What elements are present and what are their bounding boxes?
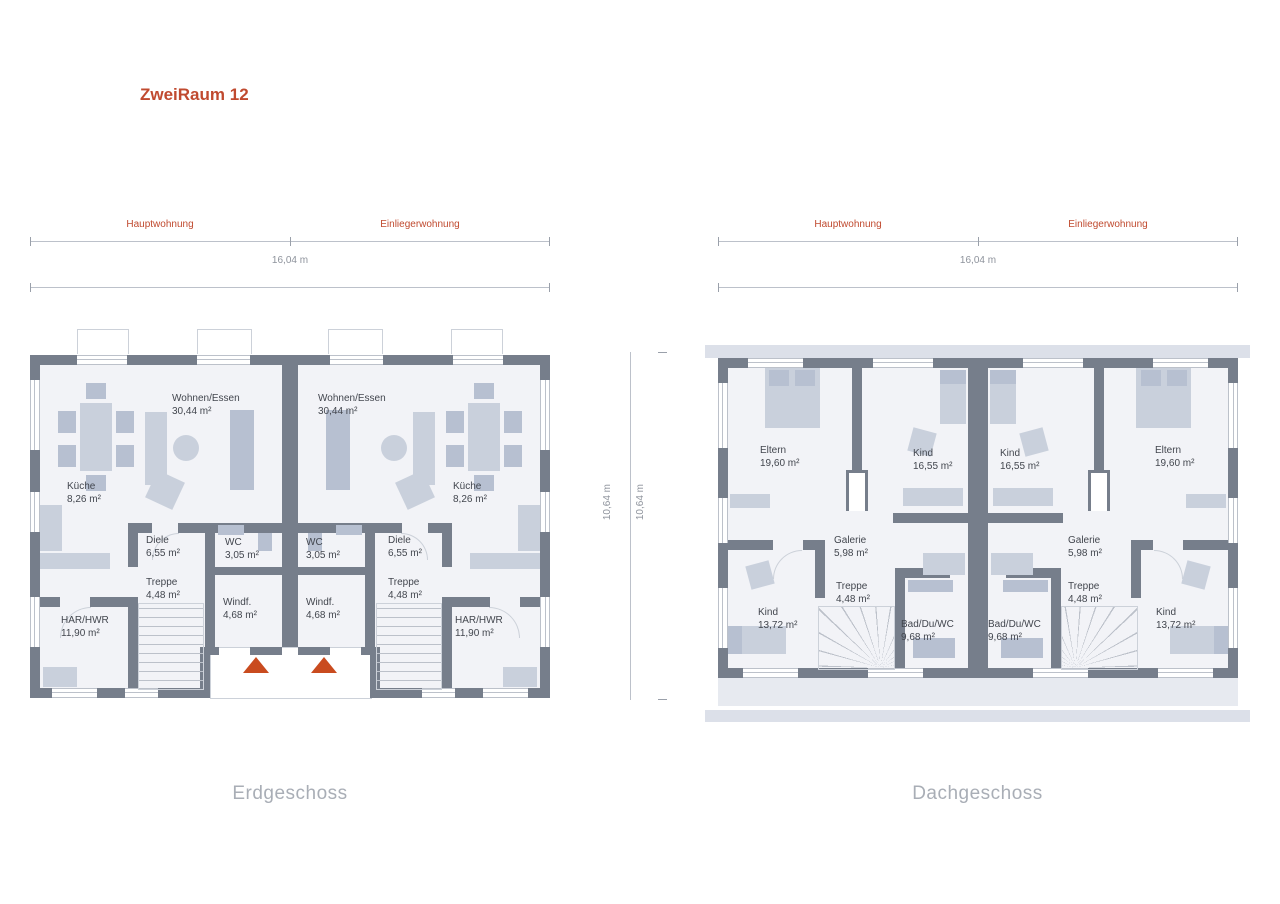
element: Treppe	[388, 577, 422, 590]
element: 3,05 m²	[306, 550, 340, 563]
eg-section-label-einliegerwohnung: Einliegerwohnung	[380, 219, 460, 230]
element: Windf.	[306, 597, 340, 610]
furniture	[990, 370, 1016, 384]
desk-chair	[1181, 560, 1210, 589]
room-label-treppe-right: Treppe4,48 m²	[1068, 581, 1102, 606]
element: 9,68 m²	[901, 632, 954, 645]
wall-segment	[852, 368, 862, 470]
wall-segment	[815, 540, 825, 598]
wall-segment	[250, 647, 282, 655]
room-label-bad-left: Bad/Du/WC9,68 m²	[901, 619, 954, 644]
window	[30, 492, 40, 532]
eg-caption: Erdgeschoss	[30, 783, 550, 805]
door-swing	[773, 550, 802, 579]
dg-staircase	[1061, 606, 1138, 670]
window	[718, 498, 728, 543]
coffee-table	[173, 435, 199, 461]
window	[30, 597, 40, 647]
element: 11,90 m²	[61, 628, 109, 641]
element: 13,72 m²	[1156, 620, 1195, 633]
element: Eltern	[1155, 445, 1194, 458]
sink	[218, 525, 244, 535]
room-label-windfang-right: Windf.4,68 m²	[306, 597, 340, 622]
sideboard	[326, 410, 350, 490]
element: 16,55 m²	[1000, 461, 1039, 474]
wardrobe	[1186, 494, 1226, 508]
window	[718, 383, 728, 448]
party-wall	[968, 358, 988, 678]
page-title: ZweiRaum 12	[140, 85, 249, 105]
dg-dim-line-sections	[718, 241, 1238, 242]
wall-segment	[442, 597, 452, 688]
element: 5,98 m²	[834, 548, 868, 561]
element: 6,55 m²	[388, 548, 422, 561]
closet	[923, 553, 965, 575]
room-label-eltern-left: Eltern19,60 m²	[760, 445, 799, 470]
element: WC	[225, 537, 259, 550]
window	[743, 668, 798, 678]
furniture	[474, 383, 494, 399]
awning-mark	[451, 329, 503, 354]
dimension-tick	[718, 283, 719, 292]
dg-total-width: 16,04 m	[960, 255, 996, 266]
dachgeschoss-plan: Eltern19,60 m² Kind16,55 m² Galerie5,98 …	[705, 345, 1250, 722]
room-label-treppe-left: Treppe4,48 m²	[836, 581, 870, 606]
depth-label-dg: 10,64 m	[635, 484, 646, 520]
element: 4,48 m²	[146, 590, 180, 603]
wall-segment	[215, 567, 282, 575]
window	[1153, 358, 1208, 368]
furniture	[58, 411, 76, 433]
wall-segment	[298, 567, 365, 575]
element: Galerie	[834, 535, 868, 548]
dg-section-label-hauptwohnung: Hauptwohnung	[814, 219, 881, 230]
void-open-below	[1088, 470, 1110, 511]
window	[1023, 358, 1083, 368]
wall-segment	[1094, 368, 1104, 470]
element: 11,90 m²	[455, 628, 503, 641]
element: Treppe	[836, 581, 870, 594]
entry-arrow-icon	[311, 657, 337, 673]
element: 4,68 m²	[306, 610, 340, 623]
depth-dim-line	[630, 352, 631, 700]
element: Kind	[913, 448, 952, 461]
party-wall	[282, 355, 298, 647]
closet	[993, 488, 1053, 506]
element: Kind	[758, 607, 797, 620]
wall-segment	[1183, 540, 1228, 550]
element: 8,26 m²	[67, 494, 101, 507]
bath-sink	[908, 580, 953, 592]
window	[1228, 383, 1238, 448]
element: Kind	[1000, 448, 1039, 461]
depth-dimension: 10,64 m 10,64 m	[598, 352, 658, 700]
wall-segment	[1131, 540, 1141, 598]
wall-segment	[361, 647, 375, 655]
window	[1228, 498, 1238, 543]
kitchen-counter	[470, 553, 540, 569]
window	[1228, 588, 1238, 648]
dimension-tick	[658, 352, 667, 353]
element: Diele	[388, 535, 422, 548]
sideboard	[230, 410, 254, 490]
furniture	[1141, 370, 1161, 386]
window	[52, 688, 97, 698]
room-label-kueche-right: Küche8,26 m²	[453, 481, 487, 506]
element: Bad/Du/WC	[901, 619, 954, 632]
wall-segment	[520, 597, 540, 607]
element: 4,48 m²	[836, 594, 870, 607]
element: 19,60 m²	[760, 458, 799, 471]
element: WC	[306, 537, 340, 550]
eg-dimension-header: Hauptwohnung Einliegerwohnung 16,04 m	[30, 215, 550, 295]
floorplan-page: ZweiRaum 12 Hauptwohnung Einliegerwohnun…	[0, 0, 1280, 904]
furniture	[1167, 370, 1187, 386]
furniture	[728, 626, 742, 654]
dimension-tick	[30, 237, 31, 246]
dg-dim-line-total	[718, 287, 1238, 288]
dimension-tick	[549, 283, 550, 292]
room-label-kind-gross-left: Kind16,55 m²	[913, 448, 952, 473]
window	[1158, 668, 1213, 678]
dimension-tick	[1237, 283, 1238, 292]
coffee-table	[381, 435, 407, 461]
element: HAR/HWR	[61, 615, 109, 628]
dimension-tick	[290, 237, 291, 246]
room-label-galerie-right: Galerie5,98 m²	[1068, 535, 1102, 560]
wall-segment	[365, 523, 375, 655]
room-label-har-right: HAR/HWR11,90 m²	[455, 615, 503, 640]
element: Galerie	[1068, 535, 1102, 548]
furniture	[58, 445, 76, 467]
awning-mark	[328, 329, 383, 354]
furniture	[504, 411, 522, 433]
room-label-wc-right: WC3,05 m²	[306, 537, 340, 562]
furniture	[86, 383, 106, 399]
room-label-treppe-right: Treppe4,48 m²	[388, 577, 422, 602]
element: Kind	[1156, 607, 1195, 620]
element: 19,60 m²	[1155, 458, 1194, 471]
dining-table	[468, 403, 500, 471]
wall-segment	[442, 523, 452, 567]
roof-band-bottom	[705, 710, 1250, 722]
kitchen-counter	[40, 505, 62, 551]
wall-segment	[728, 540, 773, 550]
dimension-tick	[978, 237, 979, 246]
furniture	[116, 445, 134, 467]
window	[748, 358, 803, 368]
window	[540, 597, 550, 647]
wall-segment	[893, 513, 968, 523]
wall-segment	[128, 597, 138, 688]
eg-dim-line-total	[30, 287, 550, 288]
bath-sink	[1003, 580, 1048, 592]
dg-staircase	[818, 606, 895, 670]
furniture	[446, 411, 464, 433]
eg-staircase	[138, 603, 204, 690]
wall-segment	[1051, 568, 1061, 668]
window	[873, 358, 933, 368]
element: 13,72 m²	[758, 620, 797, 633]
wall-segment	[895, 568, 905, 668]
room-label-kind-gross-right: Kind16,55 m²	[1000, 448, 1039, 473]
element: 4,68 m²	[223, 610, 257, 623]
element: Küche	[67, 481, 101, 494]
awning-mark	[77, 329, 129, 354]
dimension-tick	[549, 237, 550, 246]
room-label-wohnen-left: Wohnen/Essen30,44 m²	[172, 393, 240, 418]
element: Diele	[146, 535, 180, 548]
room-label-kind-klein-left: Kind13,72 m²	[758, 607, 797, 632]
wardrobe	[730, 494, 770, 508]
room-label-har-left: HAR/HWR11,90 m²	[61, 615, 109, 640]
element: Küche	[453, 481, 487, 494]
dg-caption: Dachgeschoss	[705, 783, 1250, 805]
window	[453, 355, 503, 365]
window	[30, 380, 40, 450]
room-label-eltern-right: Eltern19,60 m²	[1155, 445, 1194, 470]
kitchen-counter	[40, 553, 110, 569]
room-label-diele-right: Diele6,55 m²	[388, 535, 422, 560]
furniture	[446, 445, 464, 467]
dg-section-label-einliegerwohnung: Einliegerwohnung	[1068, 219, 1148, 230]
element: HAR/HWR	[455, 615, 503, 628]
eg-total-width: 16,04 m	[272, 255, 308, 266]
element: 4,48 m²	[388, 590, 422, 603]
appliance	[503, 667, 537, 687]
room-label-galerie-left: Galerie5,98 m²	[834, 535, 868, 560]
appliance	[43, 667, 77, 687]
desk-chair	[745, 560, 774, 589]
element: Windf.	[223, 597, 257, 610]
awning-mark	[197, 329, 252, 354]
entry-arrow-icon	[243, 657, 269, 673]
kitchen-counter	[518, 505, 540, 551]
dining-table	[80, 403, 112, 471]
room-label-kind-klein-right: Kind13,72 m²	[1156, 607, 1195, 632]
element: Treppe	[146, 577, 180, 590]
furniture	[116, 411, 134, 433]
wall-segment	[298, 647, 330, 655]
element: Wohnen/Essen	[318, 393, 386, 406]
element: 16,55 m²	[913, 461, 952, 474]
room-label-wc-left: WC3,05 m²	[225, 537, 259, 562]
void-open-below	[846, 470, 868, 511]
depth-label-eg: 10,64 m	[602, 484, 613, 520]
dimension-tick	[30, 283, 31, 292]
element: 8,26 m²	[453, 494, 487, 507]
erdgeschoss-plan: Wohnen/Essen30,44 m² Küche8,26 m² Diele6…	[30, 355, 550, 698]
eg-section-label-hauptwohnung: Hauptwohnung	[126, 219, 193, 230]
toilet	[258, 533, 272, 551]
element: 6,55 m²	[146, 548, 180, 561]
roof-band-top	[705, 345, 1250, 358]
closet	[991, 553, 1033, 575]
wall-segment	[205, 523, 215, 655]
window	[540, 492, 550, 532]
dimension-tick	[1237, 237, 1238, 246]
element: Wohnen/Essen	[172, 393, 240, 406]
element: Eltern	[760, 445, 799, 458]
window	[718, 588, 728, 648]
eg-dim-line-sections	[30, 241, 550, 242]
furniture	[940, 370, 966, 384]
furniture	[504, 445, 522, 467]
wall-segment	[988, 513, 1063, 523]
furniture	[1214, 626, 1228, 654]
room-label-diele-left: Diele6,55 m²	[146, 535, 180, 560]
window	[77, 355, 127, 365]
furniture	[795, 370, 815, 386]
window	[483, 688, 528, 698]
dimension-tick	[718, 237, 719, 246]
element: Treppe	[1068, 581, 1102, 594]
room-label-bad-right: Bad/Du/WC9,68 m²	[988, 619, 1041, 644]
element: 30,44 m²	[172, 406, 240, 419]
element: 3,05 m²	[225, 550, 259, 563]
element: Bad/Du/WC	[988, 619, 1041, 632]
door-swing	[1154, 550, 1183, 579]
wall-segment	[205, 647, 219, 655]
closet	[903, 488, 963, 506]
sink	[336, 525, 362, 535]
room-label-kueche-left: Küche8,26 m²	[67, 481, 101, 506]
element: 9,68 m²	[988, 632, 1041, 645]
window	[330, 355, 383, 365]
roof-eave-strip	[718, 678, 1238, 706]
wall-segment	[40, 597, 60, 607]
window	[197, 355, 250, 365]
room-label-treppe-left: Treppe4,48 m²	[146, 577, 180, 602]
dg-dimension-header: Hauptwohnung Einliegerwohnung 16,04 m	[718, 215, 1238, 295]
dimension-tick	[658, 699, 667, 700]
room-label-wohnen-right: Wohnen/Essen30,44 m²	[318, 393, 386, 418]
room-label-windfang-left: Windf.4,68 m²	[223, 597, 257, 622]
eg-unit-hauptwohnung	[30, 355, 290, 698]
wall-segment	[128, 523, 138, 567]
window	[540, 380, 550, 450]
element: 30,44 m²	[318, 406, 386, 419]
element: 4,48 m²	[1068, 594, 1102, 607]
eg-staircase	[376, 603, 442, 690]
furniture	[769, 370, 789, 386]
element: 5,98 m²	[1068, 548, 1102, 561]
